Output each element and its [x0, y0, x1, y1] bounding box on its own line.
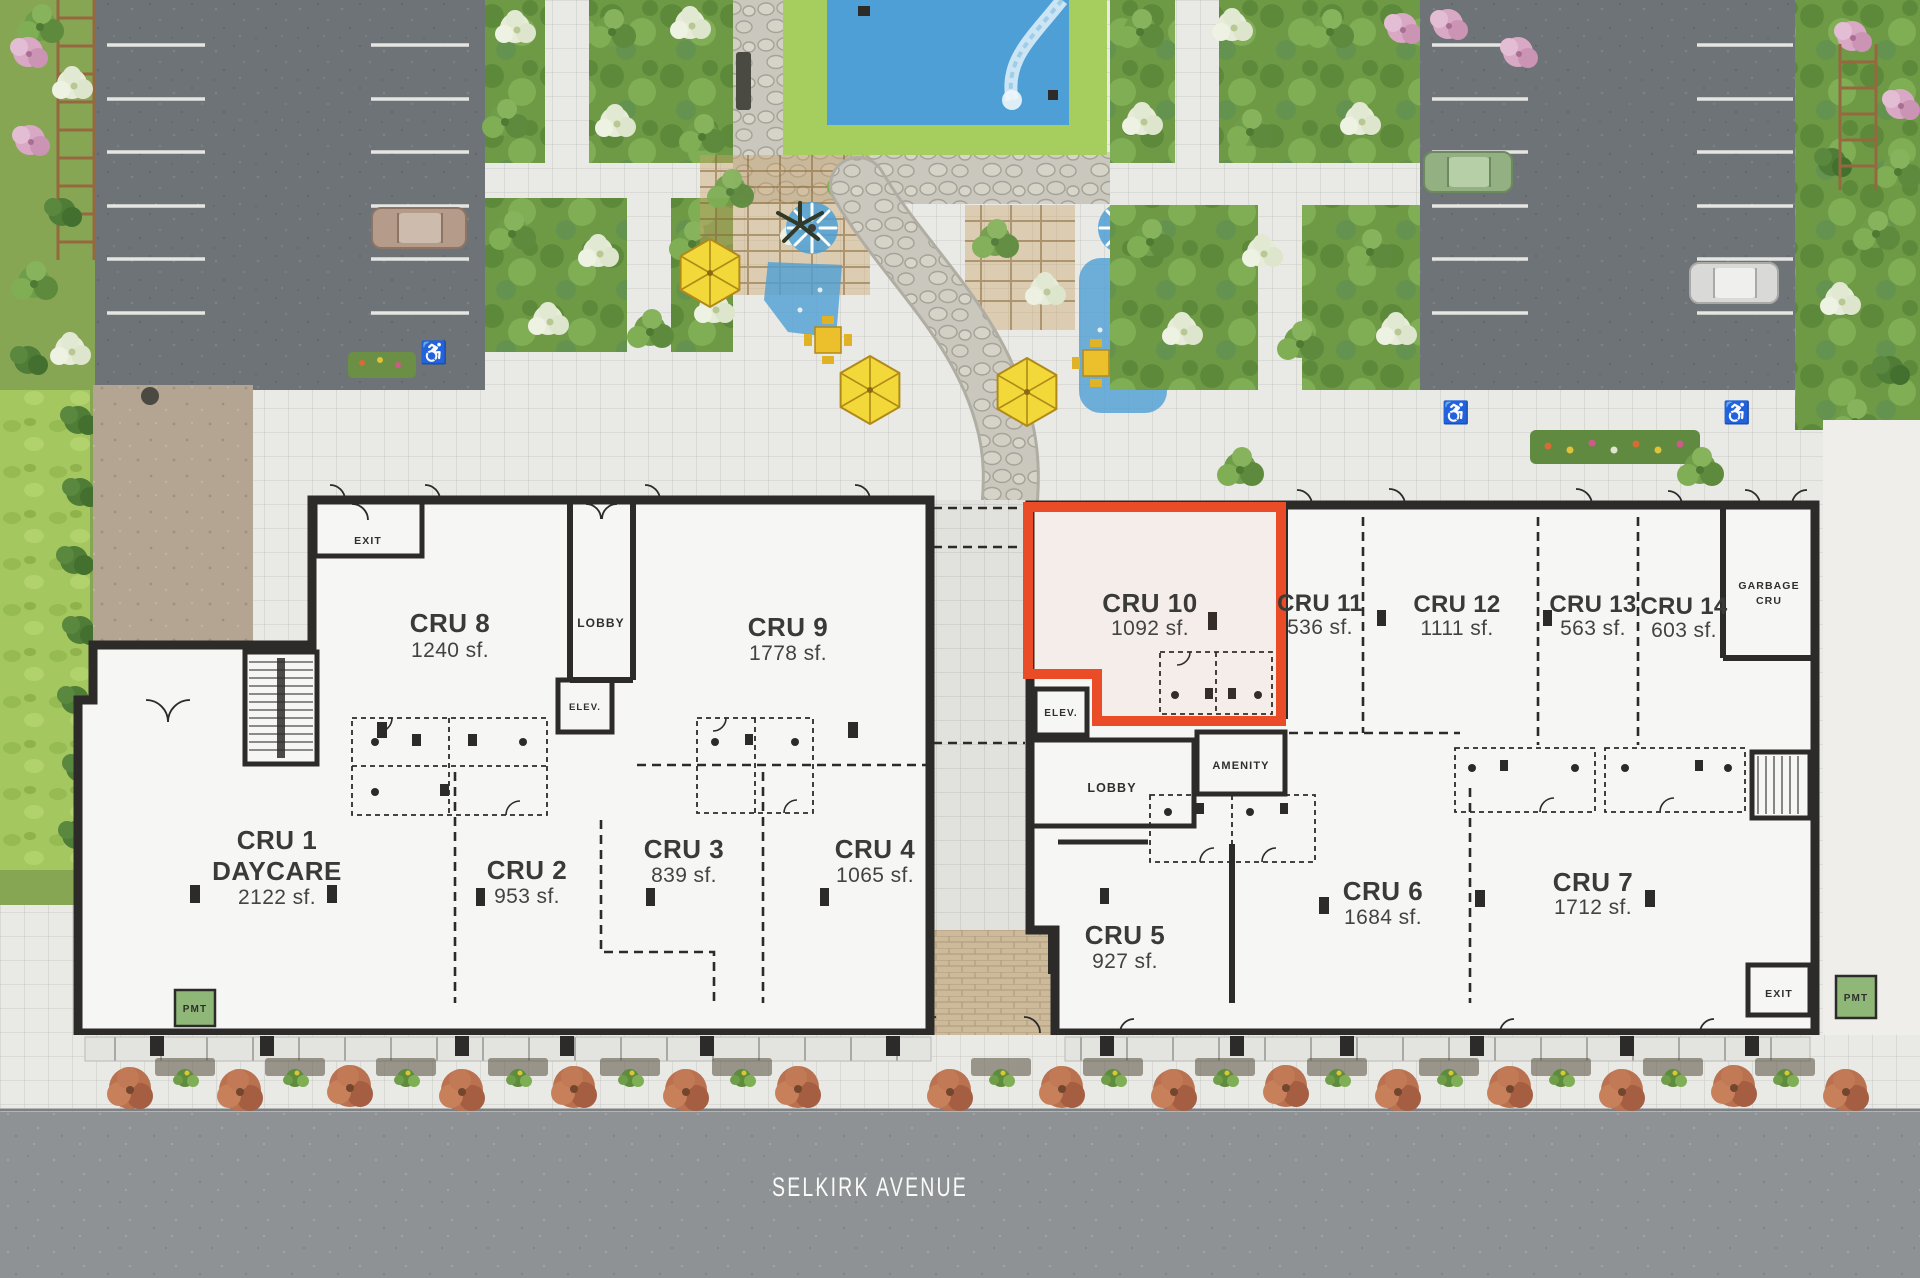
pmt-right-label: PMT — [1844, 993, 1868, 1004]
parked-car-white — [1690, 263, 1778, 303]
garden-path — [1175, 0, 1219, 163]
pool-board — [858, 6, 870, 16]
pmt-right: PMT — [1836, 976, 1876, 1018]
unit-label-cru-12[interactable]: CRU 12 1111 sf. — [1413, 591, 1500, 640]
unit-name: CRU 11 — [1277, 590, 1363, 617]
room-amenity-label: AMENITY — [1212, 760, 1269, 772]
unit-label-cru-13[interactable]: CRU 13 563 sf. — [1549, 591, 1636, 640]
pool-ladder — [1048, 90, 1058, 100]
unit-label-cru-6[interactable]: CRU 6 1684 sf. — [1343, 876, 1424, 929]
unit-name: CRU 4 — [835, 834, 916, 864]
paseo — [933, 500, 1025, 935]
unit-name: CRU 1 — [237, 825, 318, 855]
unit-name: CRU 14 — [1640, 593, 1728, 620]
room-elev-left-label: ELEV. — [569, 702, 601, 713]
unit-name: CRU 5 — [1085, 920, 1166, 950]
unit-area: 1684 sf. — [1344, 906, 1422, 929]
garden-path — [545, 0, 589, 163]
garden-path — [485, 163, 733, 198]
unit-name: CRU 8 — [410, 608, 491, 638]
parked-car-tan — [372, 208, 466, 248]
planter — [348, 352, 416, 378]
unit-area: 563 sf. — [1560, 617, 1626, 640]
unit-label-cru-7[interactable]: CRU 7 1712 sf. — [1553, 867, 1634, 919]
unit-label-cru-5[interactable]: CRU 5 927 sf. — [1085, 920, 1166, 973]
room-garbage-label-1: GARBAGE — [1738, 580, 1799, 592]
room-exit-left-label: EXIT — [354, 535, 382, 547]
unit-label-cru-2[interactable]: CRU 2 953 sf. — [487, 855, 568, 908]
accessible-parking-icon-left: ♿ — [420, 340, 447, 365]
unit-name: CRU 3 — [644, 834, 725, 864]
street-name-label: SELKIRK AVENUE — [772, 1172, 968, 1202]
accessible-parking-icon-right-1: ♿ — [1442, 400, 1469, 425]
unit-label-cru-10[interactable]: CRU 10 1092 sf. — [1102, 588, 1197, 640]
garden-path — [1110, 163, 1420, 205]
unit-label-cru-3[interactable]: CRU 3 839 sf. — [644, 834, 725, 887]
storefront-glazing-left — [85, 1037, 931, 1061]
far-right-treeline — [1795, 0, 1920, 438]
swimming-pool — [827, 0, 1069, 125]
unit-area: 927 sf. — [1092, 950, 1158, 973]
unit-area: 953 sf. — [494, 885, 560, 908]
parked-car-green — [1424, 152, 1512, 192]
garden-bed-right — [1110, 0, 1422, 390]
unit-area: 1092 sf. — [1111, 617, 1189, 640]
room-lobby-left-label: LOBBY — [577, 616, 625, 630]
unit-name: CRU 7 — [1553, 867, 1634, 897]
room-elev-right-label: ELEV. — [1044, 708, 1077, 719]
room-exit-right-label: EXIT — [1765, 988, 1793, 1000]
room-garbage-label-2: CRU — [1756, 595, 1782, 607]
site-plan: ♿ — [0, 0, 1920, 1278]
unit-label-cru-9[interactable]: CRU 9 1778 sf. — [748, 612, 829, 665]
plan-margin — [1823, 420, 1920, 1035]
unit-label-cru-8[interactable]: CRU 8 1240 sf. — [410, 608, 491, 662]
unit-label-cru-11[interactable]: CRU 11 536 sf. — [1277, 590, 1363, 639]
pmt-left-label: PMT — [183, 1004, 207, 1015]
unit-name: CRU 9 — [748, 612, 829, 642]
storefront-glazing-right — [1065, 1037, 1810, 1061]
unit-area: 603 sf. — [1651, 619, 1717, 642]
unit-name: CRU 10 — [1102, 588, 1197, 618]
pmt-left: PMT — [175, 990, 215, 1026]
unit-name: CRU 2 — [487, 855, 568, 885]
unit-label-cru-4[interactable]: CRU 4 1065 sf. — [835, 834, 916, 887]
unit-area: 536 sf. — [1287, 616, 1353, 639]
unit-name: CRU 12 — [1413, 591, 1500, 618]
unit-area: 839 sf. — [651, 864, 717, 887]
garden-path — [1258, 205, 1302, 390]
accessible-parking-icon-right-2: ♿ — [1723, 400, 1750, 425]
unit-use: DAYCARE — [212, 856, 342, 886]
room-lobby-right-label: LOBBY — [1087, 781, 1136, 795]
unit-label-cru-14[interactable]: CRU 14 603 sf. — [1640, 593, 1728, 642]
unit-area: 1065 sf. — [836, 864, 914, 887]
unit-area: 1111 sf. — [1420, 617, 1493, 640]
left-parking-lot: ♿ — [95, 0, 485, 390]
unit-name: CRU 13 — [1549, 591, 1636, 618]
unit-area: 1778 sf. — [749, 642, 827, 665]
unit-area: 1240 sf. — [411, 639, 489, 662]
bench — [736, 52, 751, 110]
unit-area: 1712 sf. — [1554, 896, 1632, 919]
unit-area: 2122 sf. — [238, 886, 316, 909]
right-parking-lot — [1420, 0, 1795, 390]
unit-name: CRU 6 — [1343, 876, 1424, 906]
